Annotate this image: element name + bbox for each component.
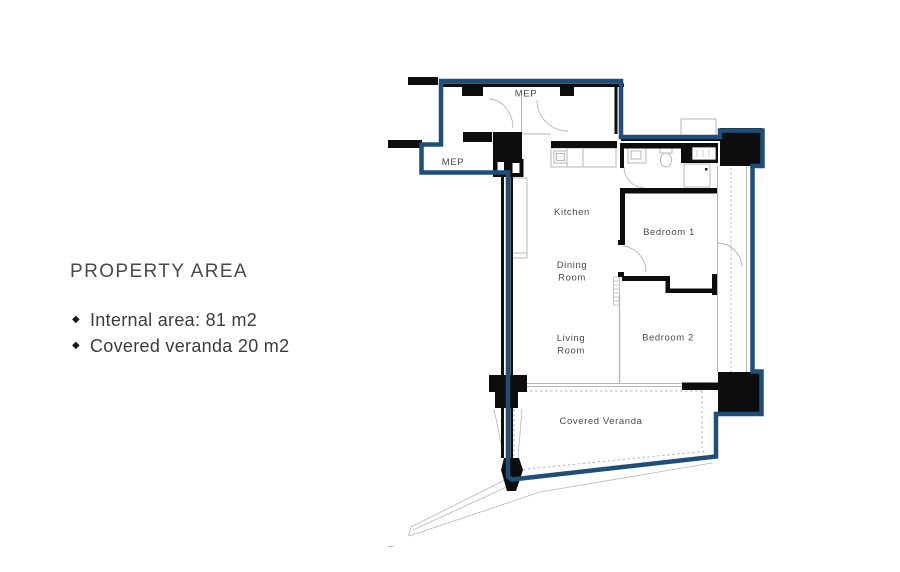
- balcony-strip-door-arc: [718, 243, 742, 267]
- shower-drain: [705, 168, 708, 171]
- corridor-door-arc: [537, 100, 568, 131]
- kitchen-counter: [551, 148, 616, 167]
- entry-door-arc: [489, 99, 513, 128]
- bedroom2-door-track: [614, 277, 620, 305]
- right-strip-lines: [718, 166, 747, 372]
- wall-counter-strip: [512, 178, 528, 258]
- corridor-right-wall: [615, 86, 618, 134]
- neighbor-wall-left: [388, 140, 422, 148]
- room-label-veranda: Covered Veranda: [560, 416, 643, 427]
- bathroom-door-arc: [624, 167, 645, 188]
- room-label-bedroom2: Bedroom 2: [642, 333, 694, 344]
- room-label-kitchen: Kitchen: [554, 207, 590, 218]
- veranda-sliding-door: [527, 384, 682, 387]
- door-jamb: [618, 240, 624, 245]
- bedroom1-door-arc: [623, 246, 646, 272]
- floor-plan: MEP MEP Kitchen Dining Room Bedroom 1 Li…: [0, 0, 900, 567]
- bedroom1-wall: [620, 188, 717, 194]
- bedroom-divider-wall: [622, 276, 668, 281]
- toilet-bowl: [661, 153, 672, 167]
- bedroom2-south-wall: [682, 383, 722, 391]
- bedroom1-wall: [620, 188, 625, 245]
- room-label-bedroom1: Bedroom 1: [643, 227, 695, 238]
- room-label-living-1: Living: [557, 333, 585, 344]
- bedroom-divider-wall: [712, 274, 717, 295]
- room-label-living-2: Room: [557, 346, 585, 357]
- mep-room-wall: [463, 132, 492, 142]
- neighbor-wall-top: [408, 77, 438, 85]
- floor-plan-svg: MEP MEP Kitchen Dining Room Bedroom 1 Li…: [0, 0, 900, 567]
- boundary-point-column: [501, 458, 523, 491]
- room-label-dining-1: Dining: [557, 260, 588, 271]
- kitchen-sink: [554, 151, 567, 163]
- shower-tray: [684, 164, 710, 187]
- room-label-mep-upper: MEP: [515, 89, 537, 100]
- kitchen-wall: [551, 141, 617, 148]
- door-jamb: [462, 86, 483, 96]
- veranda-dashed-outline: [514, 391, 707, 470]
- left-wall-lining: [511, 177, 514, 458]
- column-bottom-right: [718, 372, 762, 414]
- left-wall-lining: [501, 177, 504, 458]
- bedroom-divider-wall: [666, 289, 713, 294]
- column-top-right: [720, 128, 762, 166]
- neighbor-shaft-outline: [681, 119, 716, 137]
- room-label-mep-lower: MEP: [442, 157, 464, 168]
- room-label-dining-2: Room: [558, 273, 586, 284]
- vanity-inset: [692, 147, 716, 160]
- door-jamb: [560, 86, 574, 96]
- bathroom-wall: [620, 143, 682, 149]
